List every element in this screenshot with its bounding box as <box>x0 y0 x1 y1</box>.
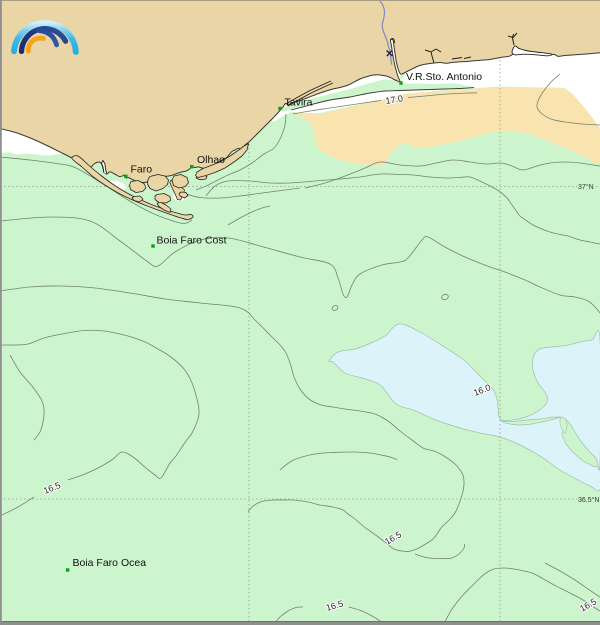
svg-text:36.5°N: 36.5°N <box>578 496 599 504</box>
svg-text:Olhao: Olhao <box>197 154 225 166</box>
svg-text:V.R.Sto. Antonio: V.R.Sto. Antonio <box>406 71 482 83</box>
svg-text:Boia Faro Ocea: Boia Faro Ocea <box>73 557 147 569</box>
svg-text:Faro: Faro <box>131 164 153 176</box>
svg-text:37°N: 37°N <box>578 183 594 191</box>
svg-text:Tavira: Tavira <box>285 97 313 109</box>
svg-text:Boia Faro Cost: Boia Faro Cost <box>157 235 227 247</box>
